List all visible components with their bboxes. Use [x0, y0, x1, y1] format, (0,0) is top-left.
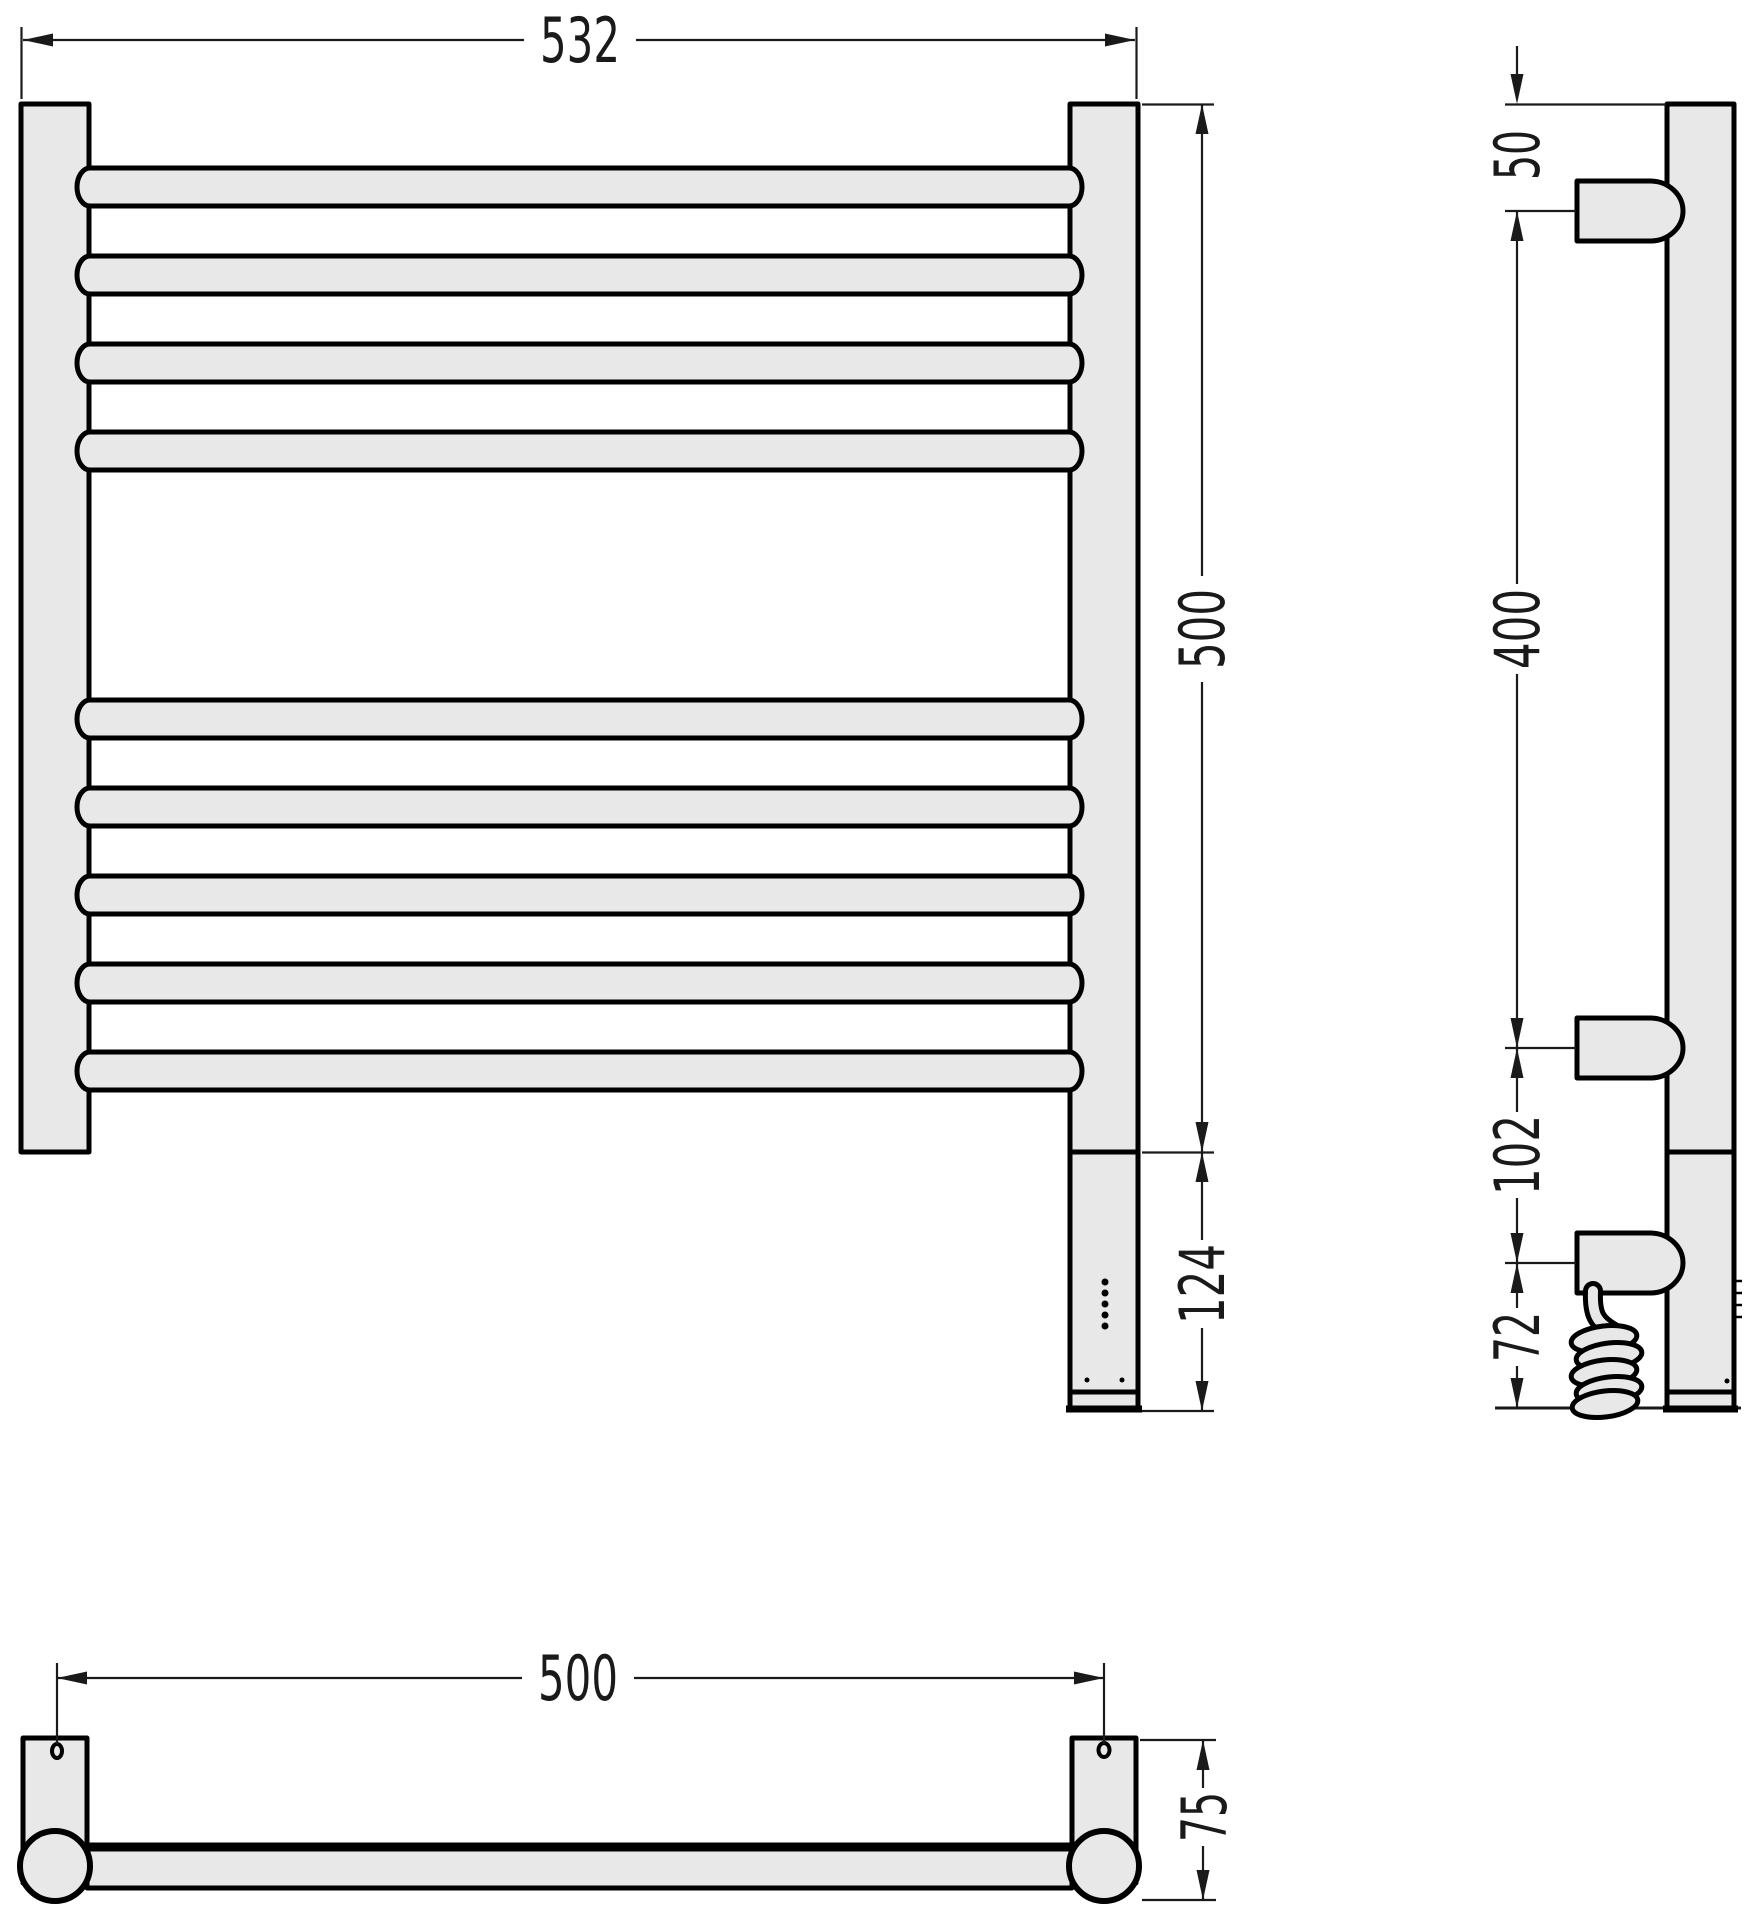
dim-side-bracket-span: 400 [1481, 211, 1554, 1048]
wall-bracket-middle [1577, 1018, 1683, 1078]
top-right-boss [1069, 1831, 1139, 1901]
dim-top-depth-label: 75 [1168, 1792, 1241, 1842]
side-rail [1667, 104, 1734, 1152]
dim-side-bracket-gap: 102 [1481, 1048, 1554, 1263]
front-bar [77, 432, 1082, 470]
dim-front-height-label: 500 [1166, 589, 1239, 669]
arrowhead-down [1511, 74, 1524, 104]
arrowhead-down [1511, 1018, 1524, 1048]
top-view: 500 75 [20, 1642, 1241, 1901]
top-left-screw-hole [52, 1744, 62, 1758]
technical-drawing: 532 500 124 [0, 0, 1757, 1920]
front-bar [77, 964, 1082, 1002]
arrowhead-down [1197, 1870, 1210, 1900]
arrowhead-down [1511, 1233, 1524, 1263]
top-left-boss [20, 1831, 90, 1901]
arrowhead-down [1196, 1122, 1209, 1152]
front-bar [77, 788, 1082, 826]
front-bar [77, 344, 1082, 382]
dim-front-width: 532 [22, 4, 1137, 99]
arrowhead-down [1196, 1381, 1209, 1411]
power-cable-coil [1570, 1291, 1644, 1421]
arrowhead-left [23, 34, 53, 47]
side-extension-lines [1505, 105, 1666, 1264]
arrowhead-right [1105, 34, 1135, 47]
front-bar [77, 1052, 1082, 1090]
arrowhead-right [1074, 1672, 1104, 1685]
front-view: 532 500 124 [21, 4, 1239, 1411]
dim-front-width-label: 532 [540, 4, 620, 77]
front-bars [77, 168, 1082, 1090]
front-bar [77, 876, 1082, 914]
cap-screw-dot [1120, 1378, 1125, 1383]
front-bar [77, 700, 1082, 738]
dim-front-control-box-label: 124 [1166, 1244, 1239, 1324]
arrowhead-down [1511, 1378, 1524, 1408]
dim-top-mount-spacing: 500 [57, 1642, 1104, 1744]
front-bar [77, 168, 1082, 206]
dim-side-bottom-gap: 72 [1481, 1263, 1554, 1408]
front-bar [77, 256, 1082, 294]
dim-side-bottom-gap-label: 72 [1481, 1312, 1554, 1362]
dim-side-bracket-span-label: 400 [1481, 589, 1554, 669]
dim-top-mount-spacing-label: 500 [538, 1642, 618, 1715]
arrowhead-up [1196, 104, 1209, 134]
dim-top-depth: 75 [1140, 1740, 1241, 1900]
cap-screw-dot [1085, 1378, 1090, 1383]
dim-side-bracket-gap-label: 102 [1481, 1115, 1554, 1195]
wall-bracket-top [1577, 181, 1683, 241]
drawing-canvas: 532 500 124 [0, 0, 1757, 1920]
dim-front-height: 500 [1142, 104, 1239, 1153]
top-right-screw-hole [1099, 1743, 1110, 1757]
arrowhead-up [1197, 1740, 1210, 1770]
side-screw-dot [1725, 1379, 1730, 1384]
arrowhead-up [1196, 1152, 1209, 1182]
side-view: 50 400 102 72 [1481, 46, 1742, 1421]
arrowhead-left [57, 1672, 87, 1685]
dim-side-top-offset-label: 50 [1481, 130, 1554, 180]
front-control-box [1070, 1152, 1138, 1392]
dim-front-control-box: 124 [1142, 1152, 1239, 1411]
